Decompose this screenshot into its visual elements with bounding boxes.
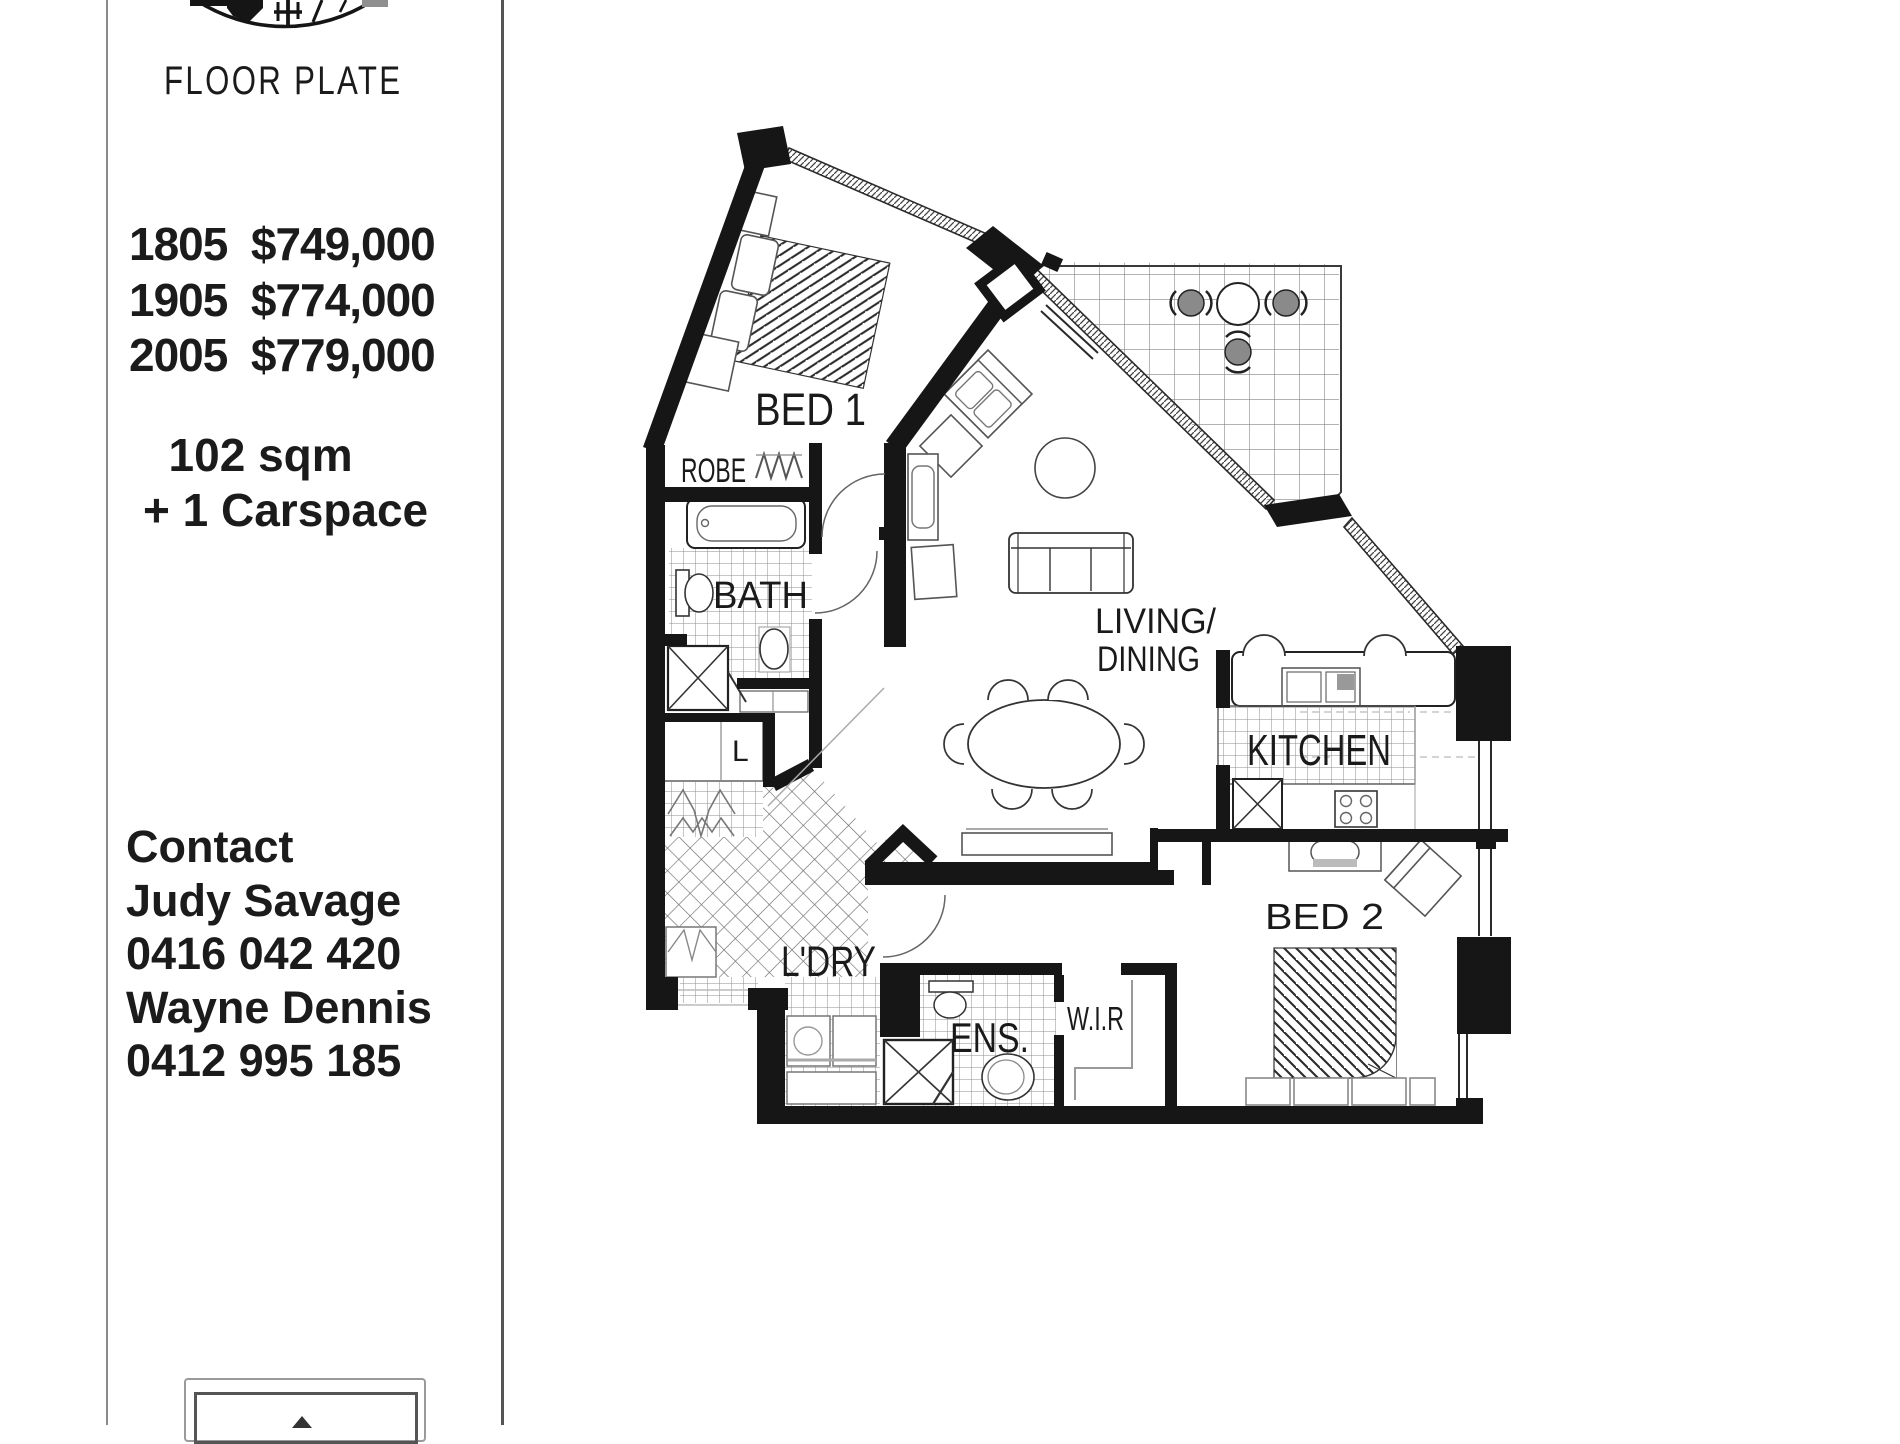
svg-text:ROBE: ROBE — [681, 452, 746, 490]
svg-text:DINING: DINING — [1097, 640, 1200, 679]
svg-text:BED 2: BED 2 — [1265, 896, 1384, 937]
svg-text:BATH: BATH — [713, 575, 808, 617]
svg-text:L'DRY: L'DRY — [781, 938, 876, 986]
svg-text:W.I.R: W.I.R — [1067, 1000, 1124, 1037]
svg-text:ENS.: ENS. — [950, 1014, 1029, 1061]
svg-text:L: L — [732, 735, 749, 768]
svg-text:BED 1: BED 1 — [755, 384, 866, 435]
svg-text:LIVING/: LIVING/ — [1095, 602, 1216, 641]
svg-text:KITCHEN: KITCHEN — [1247, 726, 1391, 775]
